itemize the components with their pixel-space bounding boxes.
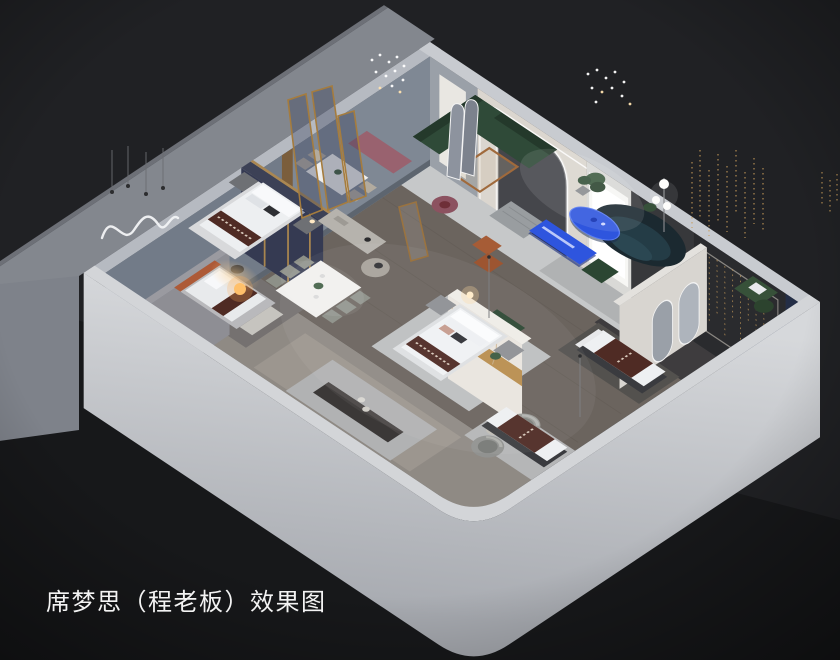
isometric-showroom-render — [0, 0, 840, 660]
render-image: 席梦思（程老板）效果图 — [0, 0, 840, 660]
caption: 席梦思（程老板）效果图 — [46, 588, 327, 617]
vignette — [0, 0, 840, 660]
